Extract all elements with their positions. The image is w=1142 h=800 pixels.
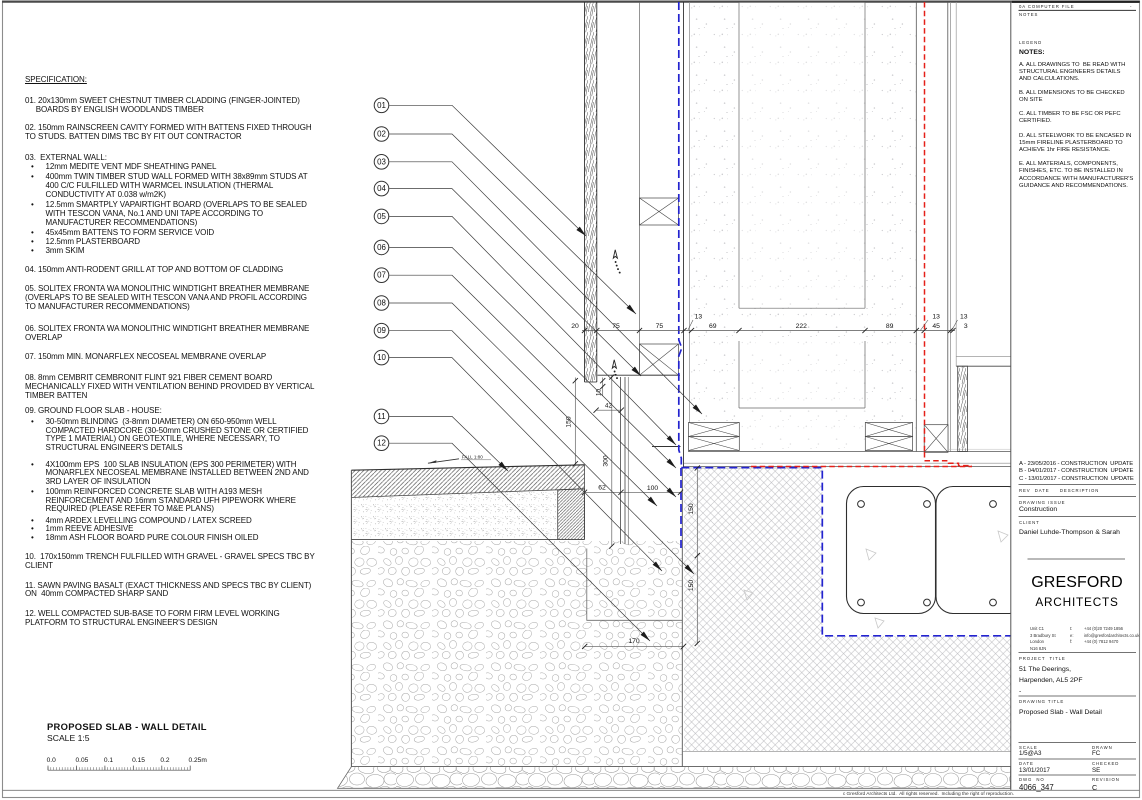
svg-text:100: 100 <box>647 485 659 492</box>
svg-text:03: 03 <box>377 157 386 166</box>
svg-text:150: 150 <box>688 580 695 592</box>
svg-text:20: 20 <box>571 323 579 330</box>
svg-text:62: 62 <box>598 485 606 492</box>
svg-text:13: 13 <box>932 313 940 320</box>
svg-text:FALL 1:80: FALL 1:80 <box>462 455 483 460</box>
svg-text:05: 05 <box>377 212 386 221</box>
svg-text:69: 69 <box>709 323 717 330</box>
svg-text:06: 06 <box>377 243 386 252</box>
svg-text:300: 300 <box>602 455 609 467</box>
svg-text:89: 89 <box>886 323 894 330</box>
svg-text:170: 170 <box>628 638 640 645</box>
svg-text:08: 08 <box>377 299 386 308</box>
svg-text:02: 02 <box>377 130 386 139</box>
svg-text:11: 11 <box>377 412 385 421</box>
svg-text:04: 04 <box>377 184 386 193</box>
svg-text:01: 01 <box>377 101 386 110</box>
svg-text:10: 10 <box>377 353 386 362</box>
svg-text:45: 45 <box>932 323 940 330</box>
svg-text:42: 42 <box>605 402 612 409</box>
svg-text:12: 12 <box>377 439 386 448</box>
svg-text:150: 150 <box>566 416 573 428</box>
svg-text:09: 09 <box>377 326 386 335</box>
svg-text:13: 13 <box>695 313 703 320</box>
svg-text:13: 13 <box>960 313 968 320</box>
svg-text:222: 222 <box>796 323 808 330</box>
svg-text:3: 3 <box>964 323 968 330</box>
svg-text:07: 07 <box>377 271 386 280</box>
svg-text:150: 150 <box>688 503 695 515</box>
svg-text:75: 75 <box>656 323 664 330</box>
